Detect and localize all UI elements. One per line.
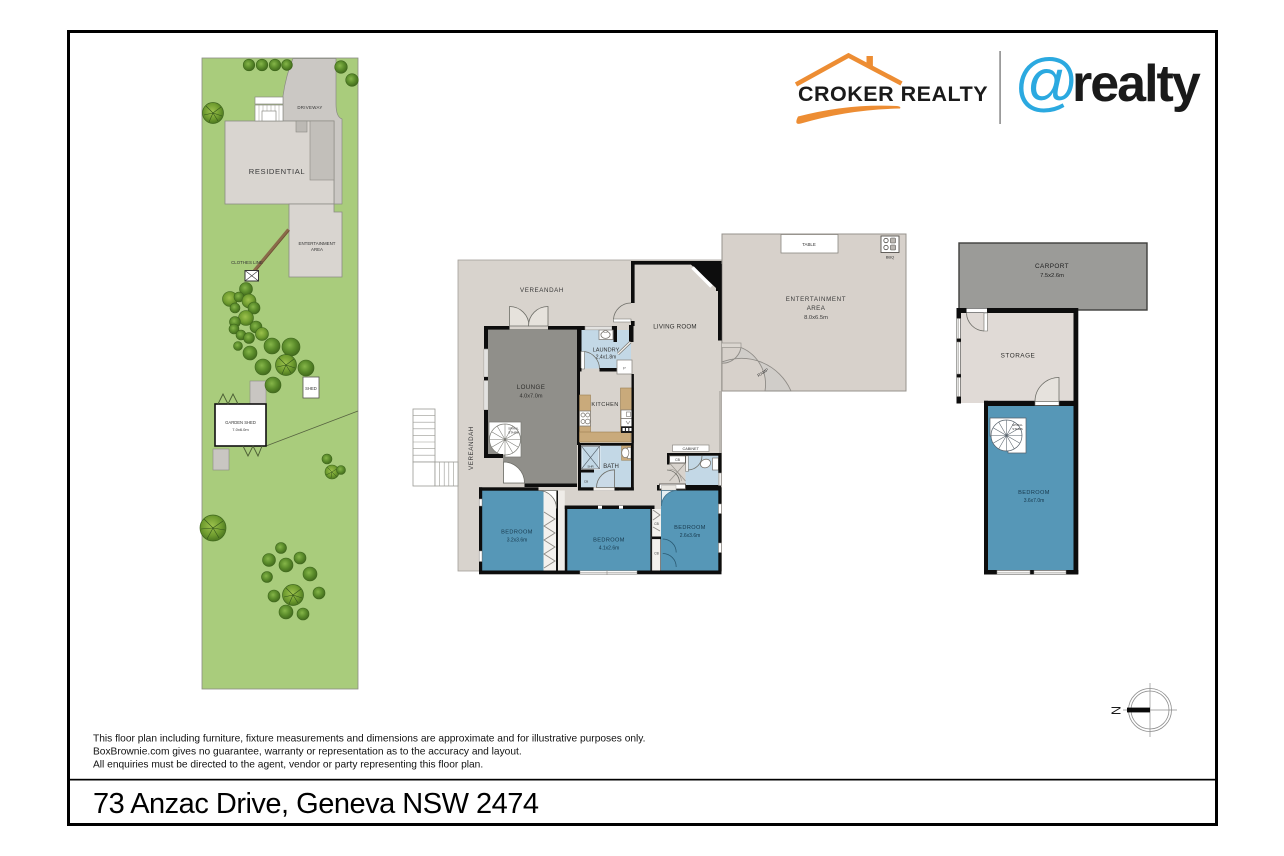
svg-text:CB: CB (675, 458, 680, 462)
svg-text:LIVING ROOM: LIVING ROOM (653, 324, 696, 331)
svg-text:BATH: BATH (603, 464, 619, 470)
svg-text:CARPORT: CARPORT (1035, 263, 1069, 270)
svg-text:ENTERTAINMENT: ENTERTAINMENT (786, 296, 846, 303)
svg-text:7.5x2.6m: 7.5x2.6m (1040, 273, 1064, 279)
svg-text:SHR: SHR (587, 465, 594, 469)
svg-text:TABLE: TABLE (802, 242, 816, 247)
svg-text:3.2x3.6m: 3.2x3.6m (507, 538, 528, 544)
svg-text:2.6x3.6m: 2.6x3.6m (680, 533, 701, 539)
svg-text:4.0x7.0m: 4.0x7.0m (519, 394, 542, 400)
svg-text:BBQ: BBQ (886, 255, 894, 260)
svg-text:VEREANDAH: VEREANDAH (468, 426, 475, 470)
svg-text:BEDROOM: BEDROOM (593, 538, 625, 544)
svg-text:CB: CB (654, 522, 658, 526)
svg-text:73 Anzac Drive, Geneva NSW 247: 73 Anzac Drive, Geneva NSW 2474 (93, 788, 539, 820)
svg-text:CLOTHES LINE: CLOTHES LINE (231, 260, 263, 265)
svg-text:P: P (623, 366, 626, 371)
svg-text:LOUNGE: LOUNGE (517, 384, 546, 391)
svg-text:@: @ (1013, 46, 1078, 118)
svg-text:8.0x6.5m: 8.0x6.5m (804, 315, 828, 321)
svg-text:STORAGE: STORAGE (1001, 353, 1036, 360)
svg-text:2,4x1.8m: 2,4x1.8m (596, 355, 617, 361)
svg-text:This floor plan including furn: This floor plan including furniture, fix… (93, 734, 645, 745)
svg-text:realty: realty (1072, 55, 1201, 113)
svg-text:BEDROOM: BEDROOM (501, 530, 533, 536)
svg-text:VEREANDAH: VEREANDAH (520, 287, 564, 294)
svg-text:BEDROOM: BEDROOM (674, 525, 706, 531)
svg-text:AREA: AREA (311, 247, 323, 252)
svg-text:CABINET: CABINET (682, 447, 699, 451)
svg-text:STAIRS: STAIRS (508, 431, 519, 435)
svg-text:STAIRS: STAIRS (1012, 427, 1023, 431)
svg-text:BEDROOM: BEDROOM (1018, 490, 1050, 496)
svg-text:RESIDENTIAL: RESIDENTIAL (249, 167, 305, 176)
svg-text:N: N (1110, 706, 1124, 715)
svg-text:4.1x2.6m: 4.1x2.6m (599, 546, 620, 552)
svg-text:7.0x6.0m: 7.0x6.0m (232, 427, 249, 432)
svg-text:BoxBrownie.com gives no guaran: BoxBrownie.com gives no guarantee, warra… (93, 747, 522, 758)
svg-text:LAUNDRY: LAUNDRY (593, 348, 620, 354)
svg-text:ENTERTAINMENT: ENTERTAINMENT (299, 241, 336, 246)
svg-text:AREA: AREA (807, 305, 826, 312)
svg-text:3.6x7.0m: 3.6x7.0m (1024, 498, 1045, 504)
svg-text:CB: CB (654, 552, 658, 556)
svg-text:KITCHEN: KITCHEN (591, 402, 618, 408)
svg-text:CROKER REALTY: CROKER REALTY (798, 82, 988, 106)
svg-text:GARDEN SHED: GARDEN SHED (225, 420, 256, 425)
svg-text:SHED: SHED (305, 386, 317, 391)
svg-text:CB: CB (584, 480, 588, 484)
svg-text:DRIVEWAY: DRIVEWAY (297, 105, 322, 110)
svg-text:All enquiries must be directed: All enquiries must be directed to the ag… (93, 760, 483, 771)
